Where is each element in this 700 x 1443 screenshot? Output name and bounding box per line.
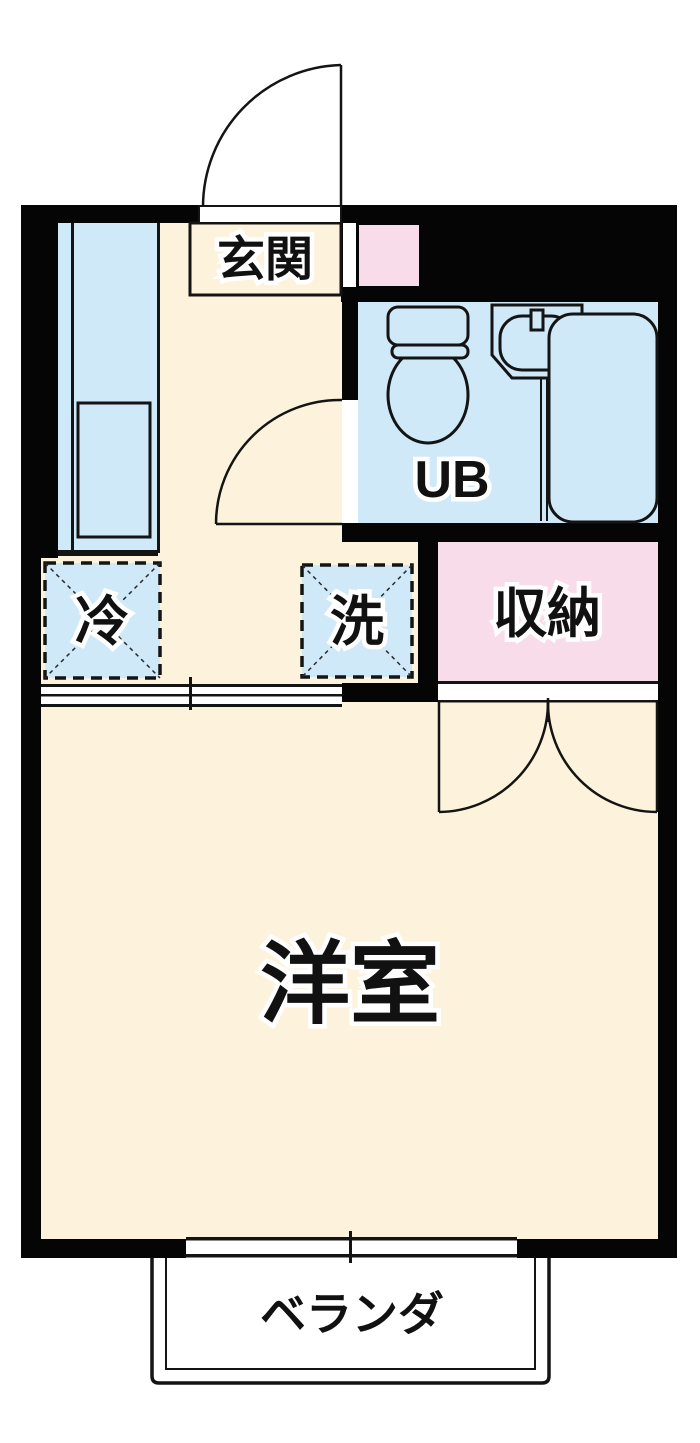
- wall-left: [21, 556, 41, 1258]
- partition-tick: [189, 677, 192, 710]
- wall-storage-left: [418, 542, 438, 702]
- kitchen-counter-edge: [71, 223, 74, 550]
- veranda-label: ベランダ: [260, 1288, 444, 1340]
- washer-label: 洗: [330, 592, 384, 652]
- veranda-window-tick: [349, 1231, 352, 1263]
- storage-door-top-line: [438, 681, 658, 684]
- kitchen-hall-divider: [157, 223, 160, 553]
- entrance-niche: [343, 223, 356, 287]
- toilet-tank: [388, 307, 468, 345]
- storage-label: 収納: [493, 584, 601, 644]
- western-room-label: 洋室: [260, 935, 440, 1035]
- basin-faucet: [531, 310, 543, 330]
- unit-bath-label: UB: [414, 451, 489, 509]
- toilet-lid: [392, 345, 468, 358]
- bathtub: [549, 314, 657, 522]
- entrance-door-swing-arc: [203, 65, 341, 207]
- wall-under-washer: [342, 683, 418, 702]
- genkan-label: 玄関: [217, 234, 313, 287]
- toilet-bowl: [388, 347, 468, 443]
- refrigerator-label: 冷: [75, 592, 129, 652]
- wall-left-thick: [21, 205, 58, 558]
- storage-door-band: [438, 684, 658, 700]
- wall-bottom-right: [517, 1239, 677, 1258]
- entrance-threshold: [199, 206, 341, 223]
- entrance-cabinet: [359, 225, 419, 286]
- floor-plan: 玄関 UB 収納 冷 洗 洋室 ベランダ: [0, 0, 700, 1443]
- wall-bottom-left: [21, 1239, 186, 1258]
- ub-door-opening: [342, 400, 358, 523]
- wall-right: [658, 302, 677, 1258]
- wall-ub-bottom: [342, 523, 658, 542]
- toilet: [388, 307, 468, 443]
- floor-plan-drawing: 玄関 UB 収納 冷 洗 洋室 ベランダ: [0, 0, 700, 1443]
- kitchen-bottom-line: [58, 550, 158, 556]
- wall-hall-ub: [342, 302, 358, 400]
